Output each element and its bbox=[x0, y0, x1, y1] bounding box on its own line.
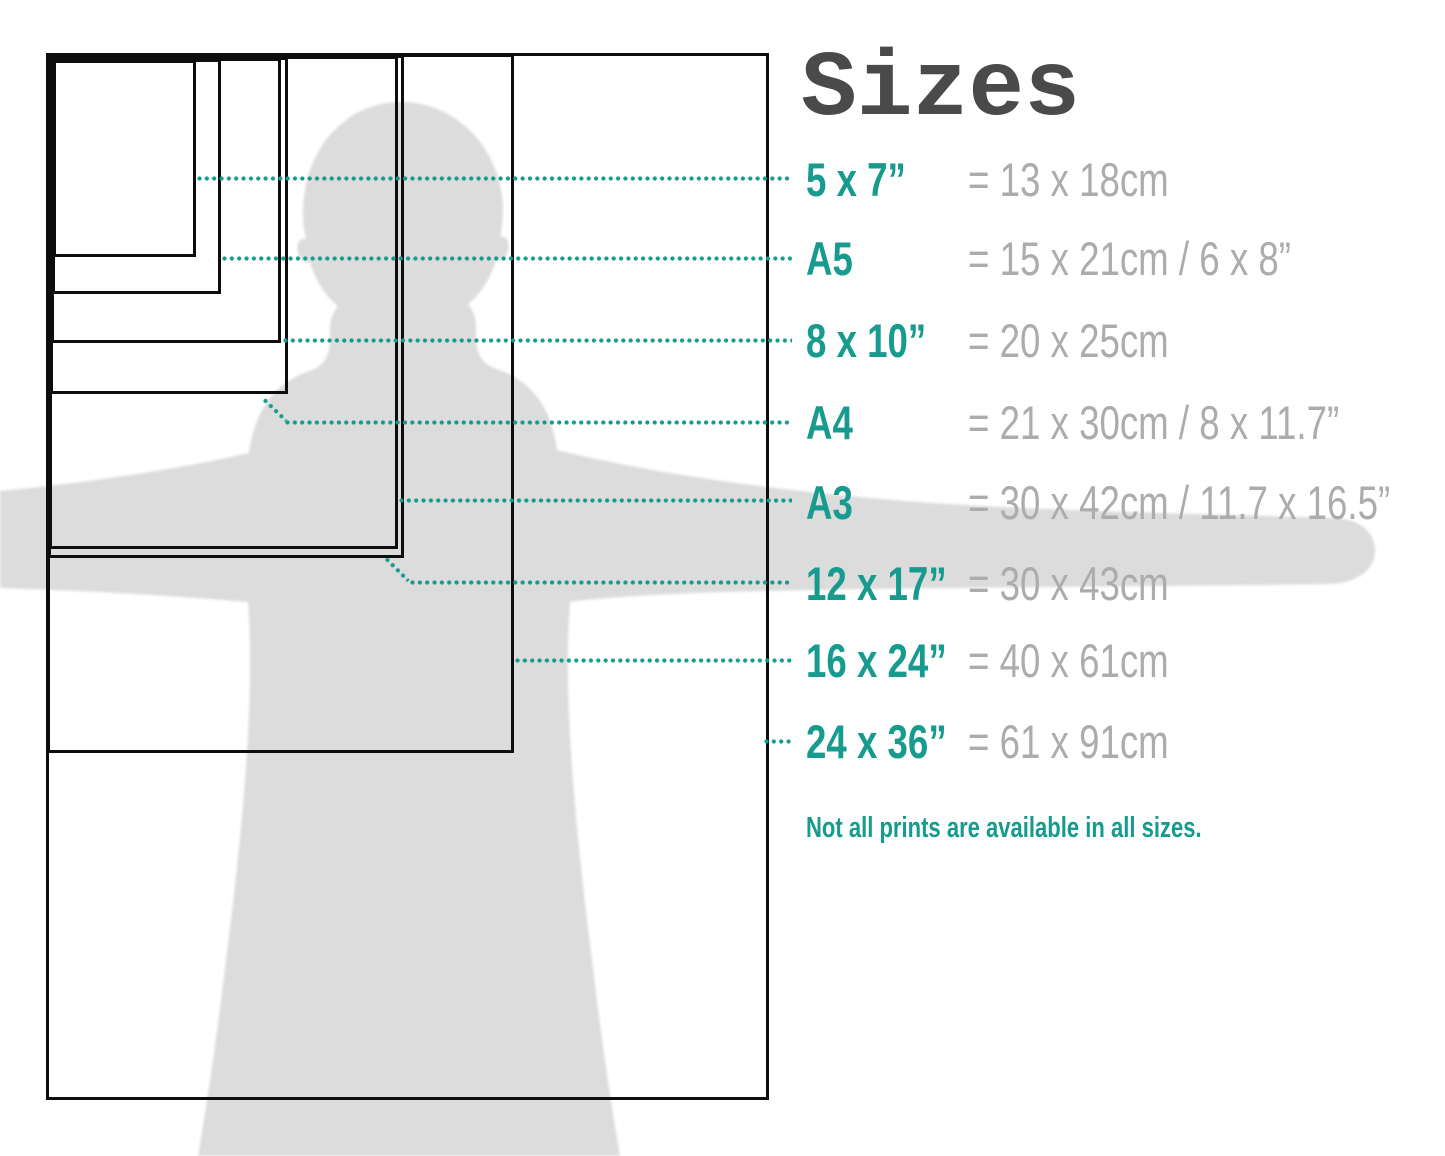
size-metric-24x36: = 61 x 91cm bbox=[968, 716, 1169, 768]
size-metric-8x10: = 20 x 25cm bbox=[968, 315, 1169, 367]
size-metric-a3: = 30 x 42cm / 11.7 x 16.5” bbox=[968, 477, 1390, 529]
size-metric-12x17: = 30 x 43cm bbox=[968, 558, 1169, 610]
size-metric-a4: = 21 x 30cm / 8 x 11.7” bbox=[968, 397, 1339, 449]
page-title: Sizes bbox=[801, 40, 1080, 140]
size-label-24x36: 24 x 36” bbox=[806, 716, 947, 768]
size-label-a3: A3 bbox=[806, 477, 853, 529]
callout-line-12x17 bbox=[409, 579, 792, 586]
callout-line-16x24 bbox=[514, 657, 792, 664]
availability-note: Not all prints are available in all size… bbox=[806, 812, 1202, 845]
callout-line-24x36 bbox=[763, 738, 792, 745]
size-label-5x7: 5 x 7” bbox=[806, 154, 906, 206]
size-label-12x17: 12 x 17” bbox=[806, 558, 947, 610]
size-label-a4: A4 bbox=[806, 397, 853, 449]
size-metric-16x24: = 40 x 61cm bbox=[968, 635, 1169, 687]
callout-line-a3 bbox=[398, 497, 792, 504]
size-label-8x10: 8 x 10” bbox=[806, 315, 926, 367]
size-metric-5x7: = 13 x 18cm bbox=[968, 154, 1169, 206]
size-metric-a5: = 15 x 21cm / 6 x 8” bbox=[968, 233, 1291, 285]
callout-line-5x7 bbox=[196, 175, 792, 182]
size-rect-5x7 bbox=[53, 60, 196, 257]
print-size-guide-infographic: Sizes 5 x 7” = 13 x 18cm A5 = 15 x 21cm … bbox=[0, 0, 1445, 1156]
callout-line-8x10 bbox=[282, 337, 792, 344]
callout-line-a4 bbox=[284, 419, 792, 426]
size-label-a5: A5 bbox=[806, 233, 853, 285]
callout-line-a5 bbox=[221, 255, 792, 262]
size-label-16x24: 16 x 24” bbox=[806, 635, 947, 687]
